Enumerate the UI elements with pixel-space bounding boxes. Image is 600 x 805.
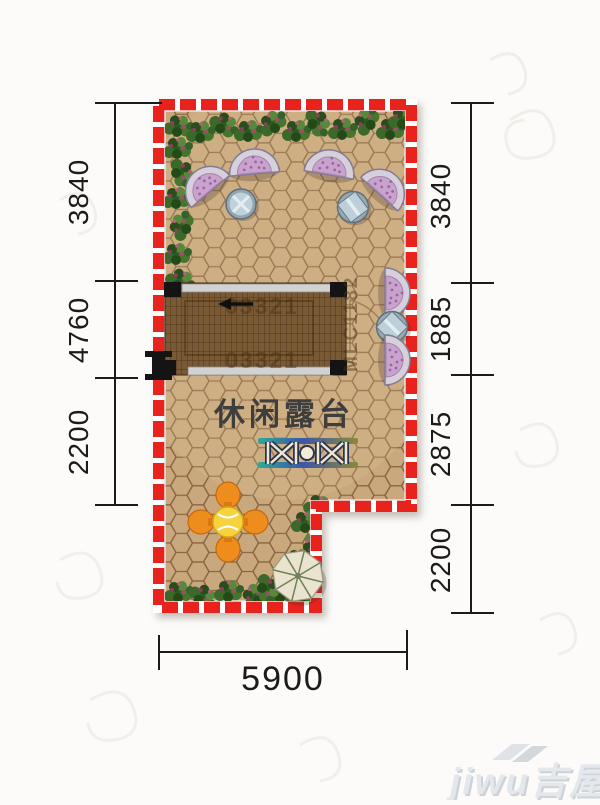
dimension-label: 5900 (241, 660, 325, 698)
dimension-label: 3840 (63, 159, 94, 225)
stair-code-side: MLC1182 (341, 276, 362, 372)
stair-code-top: 03321 (225, 293, 299, 319)
dimension-label: 1885 (425, 296, 456, 362)
floor-plan-canvas: 03321 03321 MLC1182 休闲露台 (0, 0, 600, 800)
staircase: 03321 03321 MLC1182 (145, 276, 362, 380)
dimension-label: 2200 (425, 527, 456, 593)
lounge-chairs-right (376, 267, 411, 386)
dimension-label: 2875 (425, 411, 456, 477)
dimension-label: 4760 (63, 297, 94, 363)
stair-rail-top (182, 284, 332, 292)
room-label: 休闲露台 (213, 397, 354, 432)
stair-code-bottom: 03321 (225, 347, 299, 373)
dimension-label: 2200 (63, 409, 94, 475)
dimension-label: 3840 (425, 163, 456, 229)
brand-watermark-text: jiwu吉屋 (446, 761, 600, 800)
